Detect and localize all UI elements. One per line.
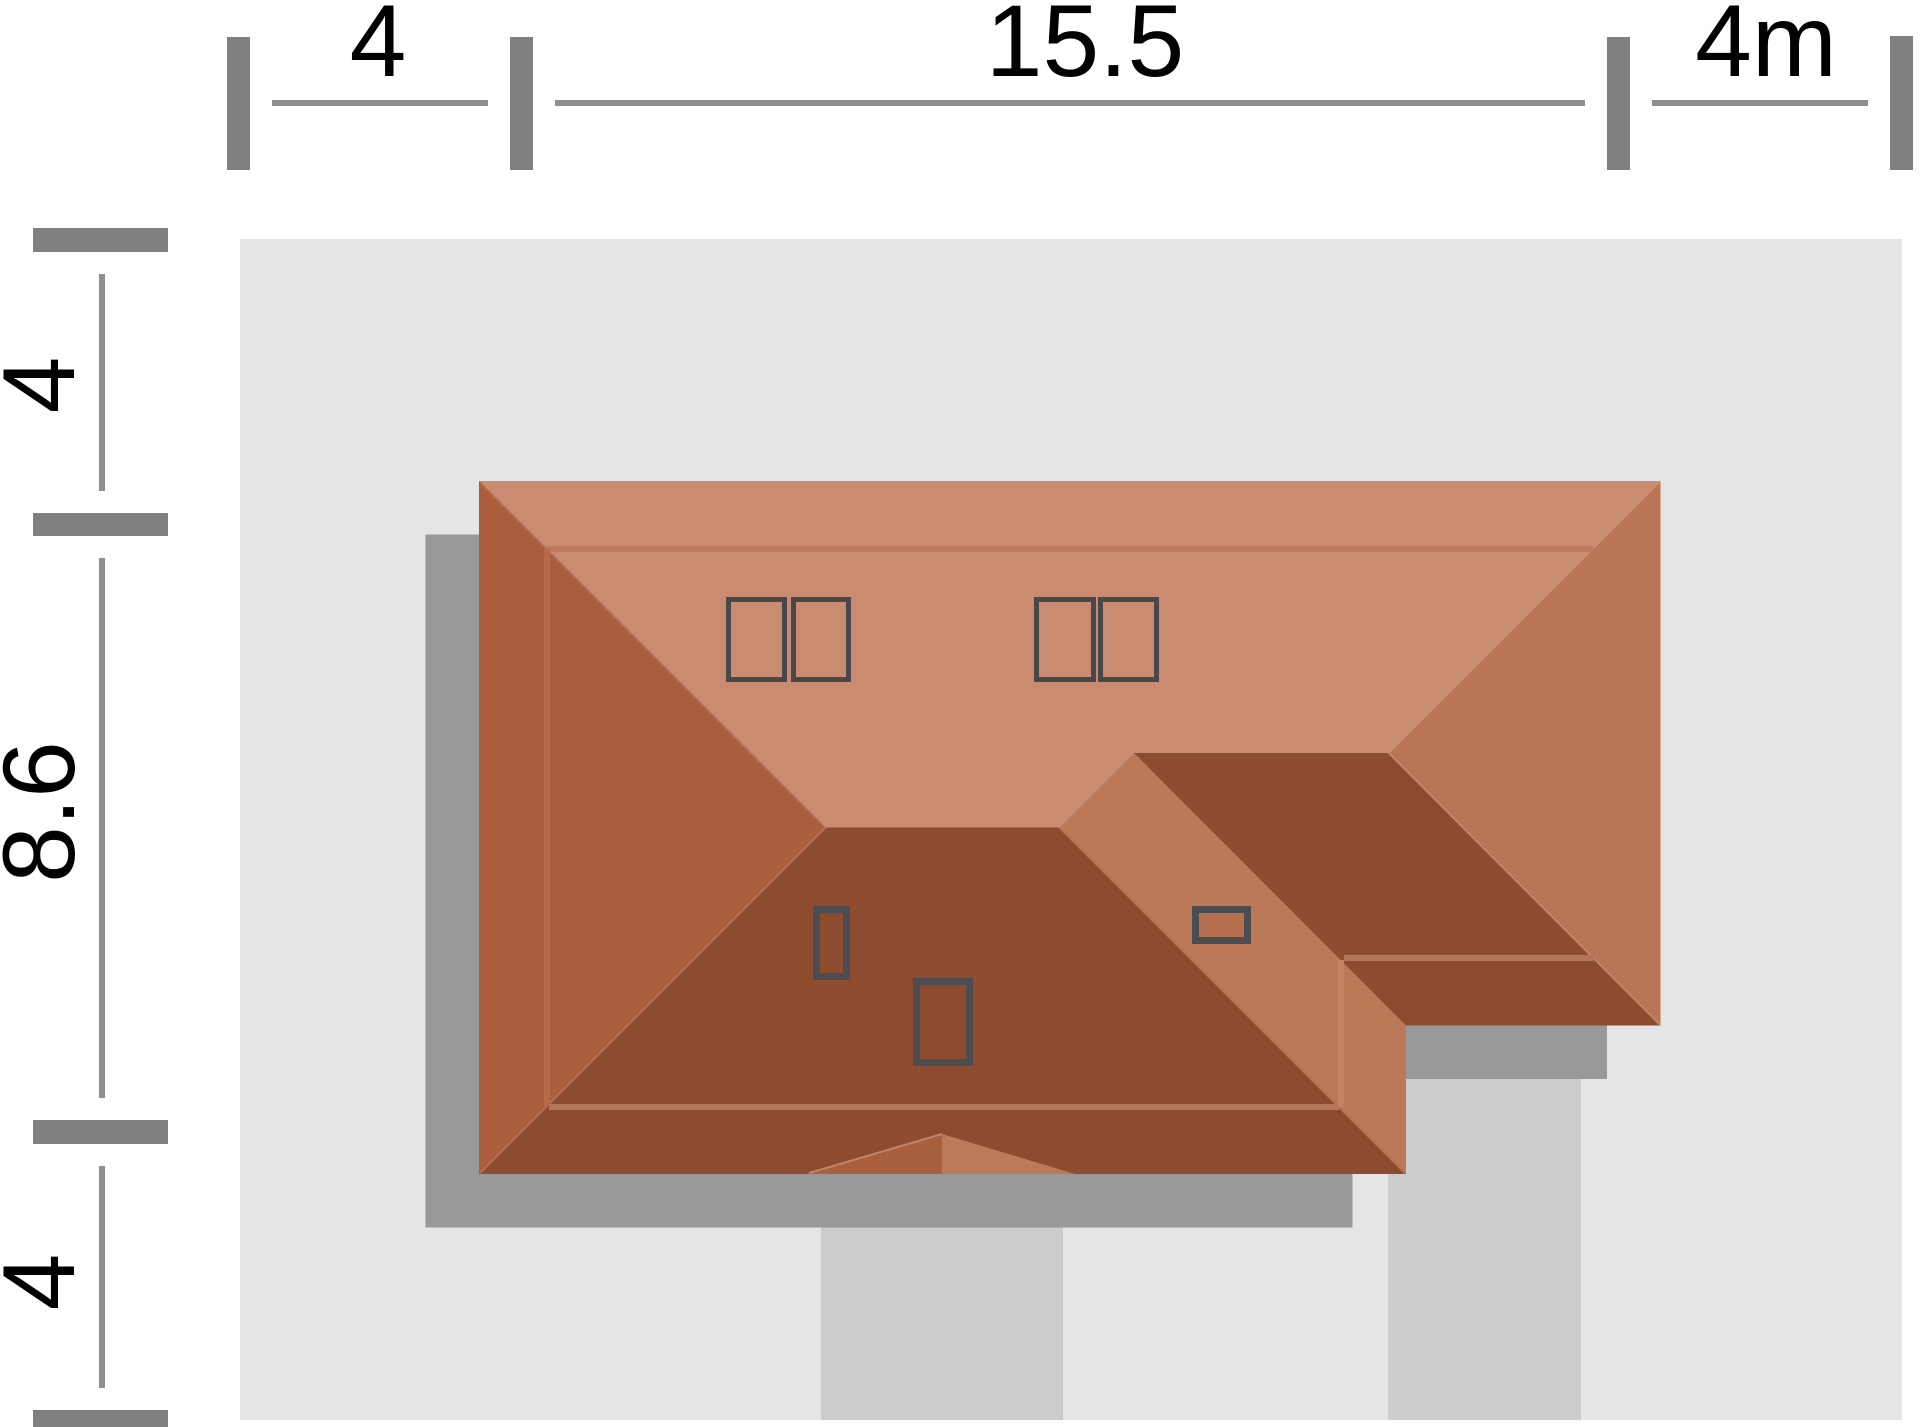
svg-text:4m: 4m	[1695, 0, 1837, 98]
svg-text:4: 4	[0, 357, 96, 414]
svg-text:4: 4	[0, 1254, 96, 1311]
svg-text:8.6: 8.6	[0, 741, 96, 883]
svg-text:15.5: 15.5	[986, 0, 1185, 98]
svg-text:4: 4	[350, 0, 407, 98]
